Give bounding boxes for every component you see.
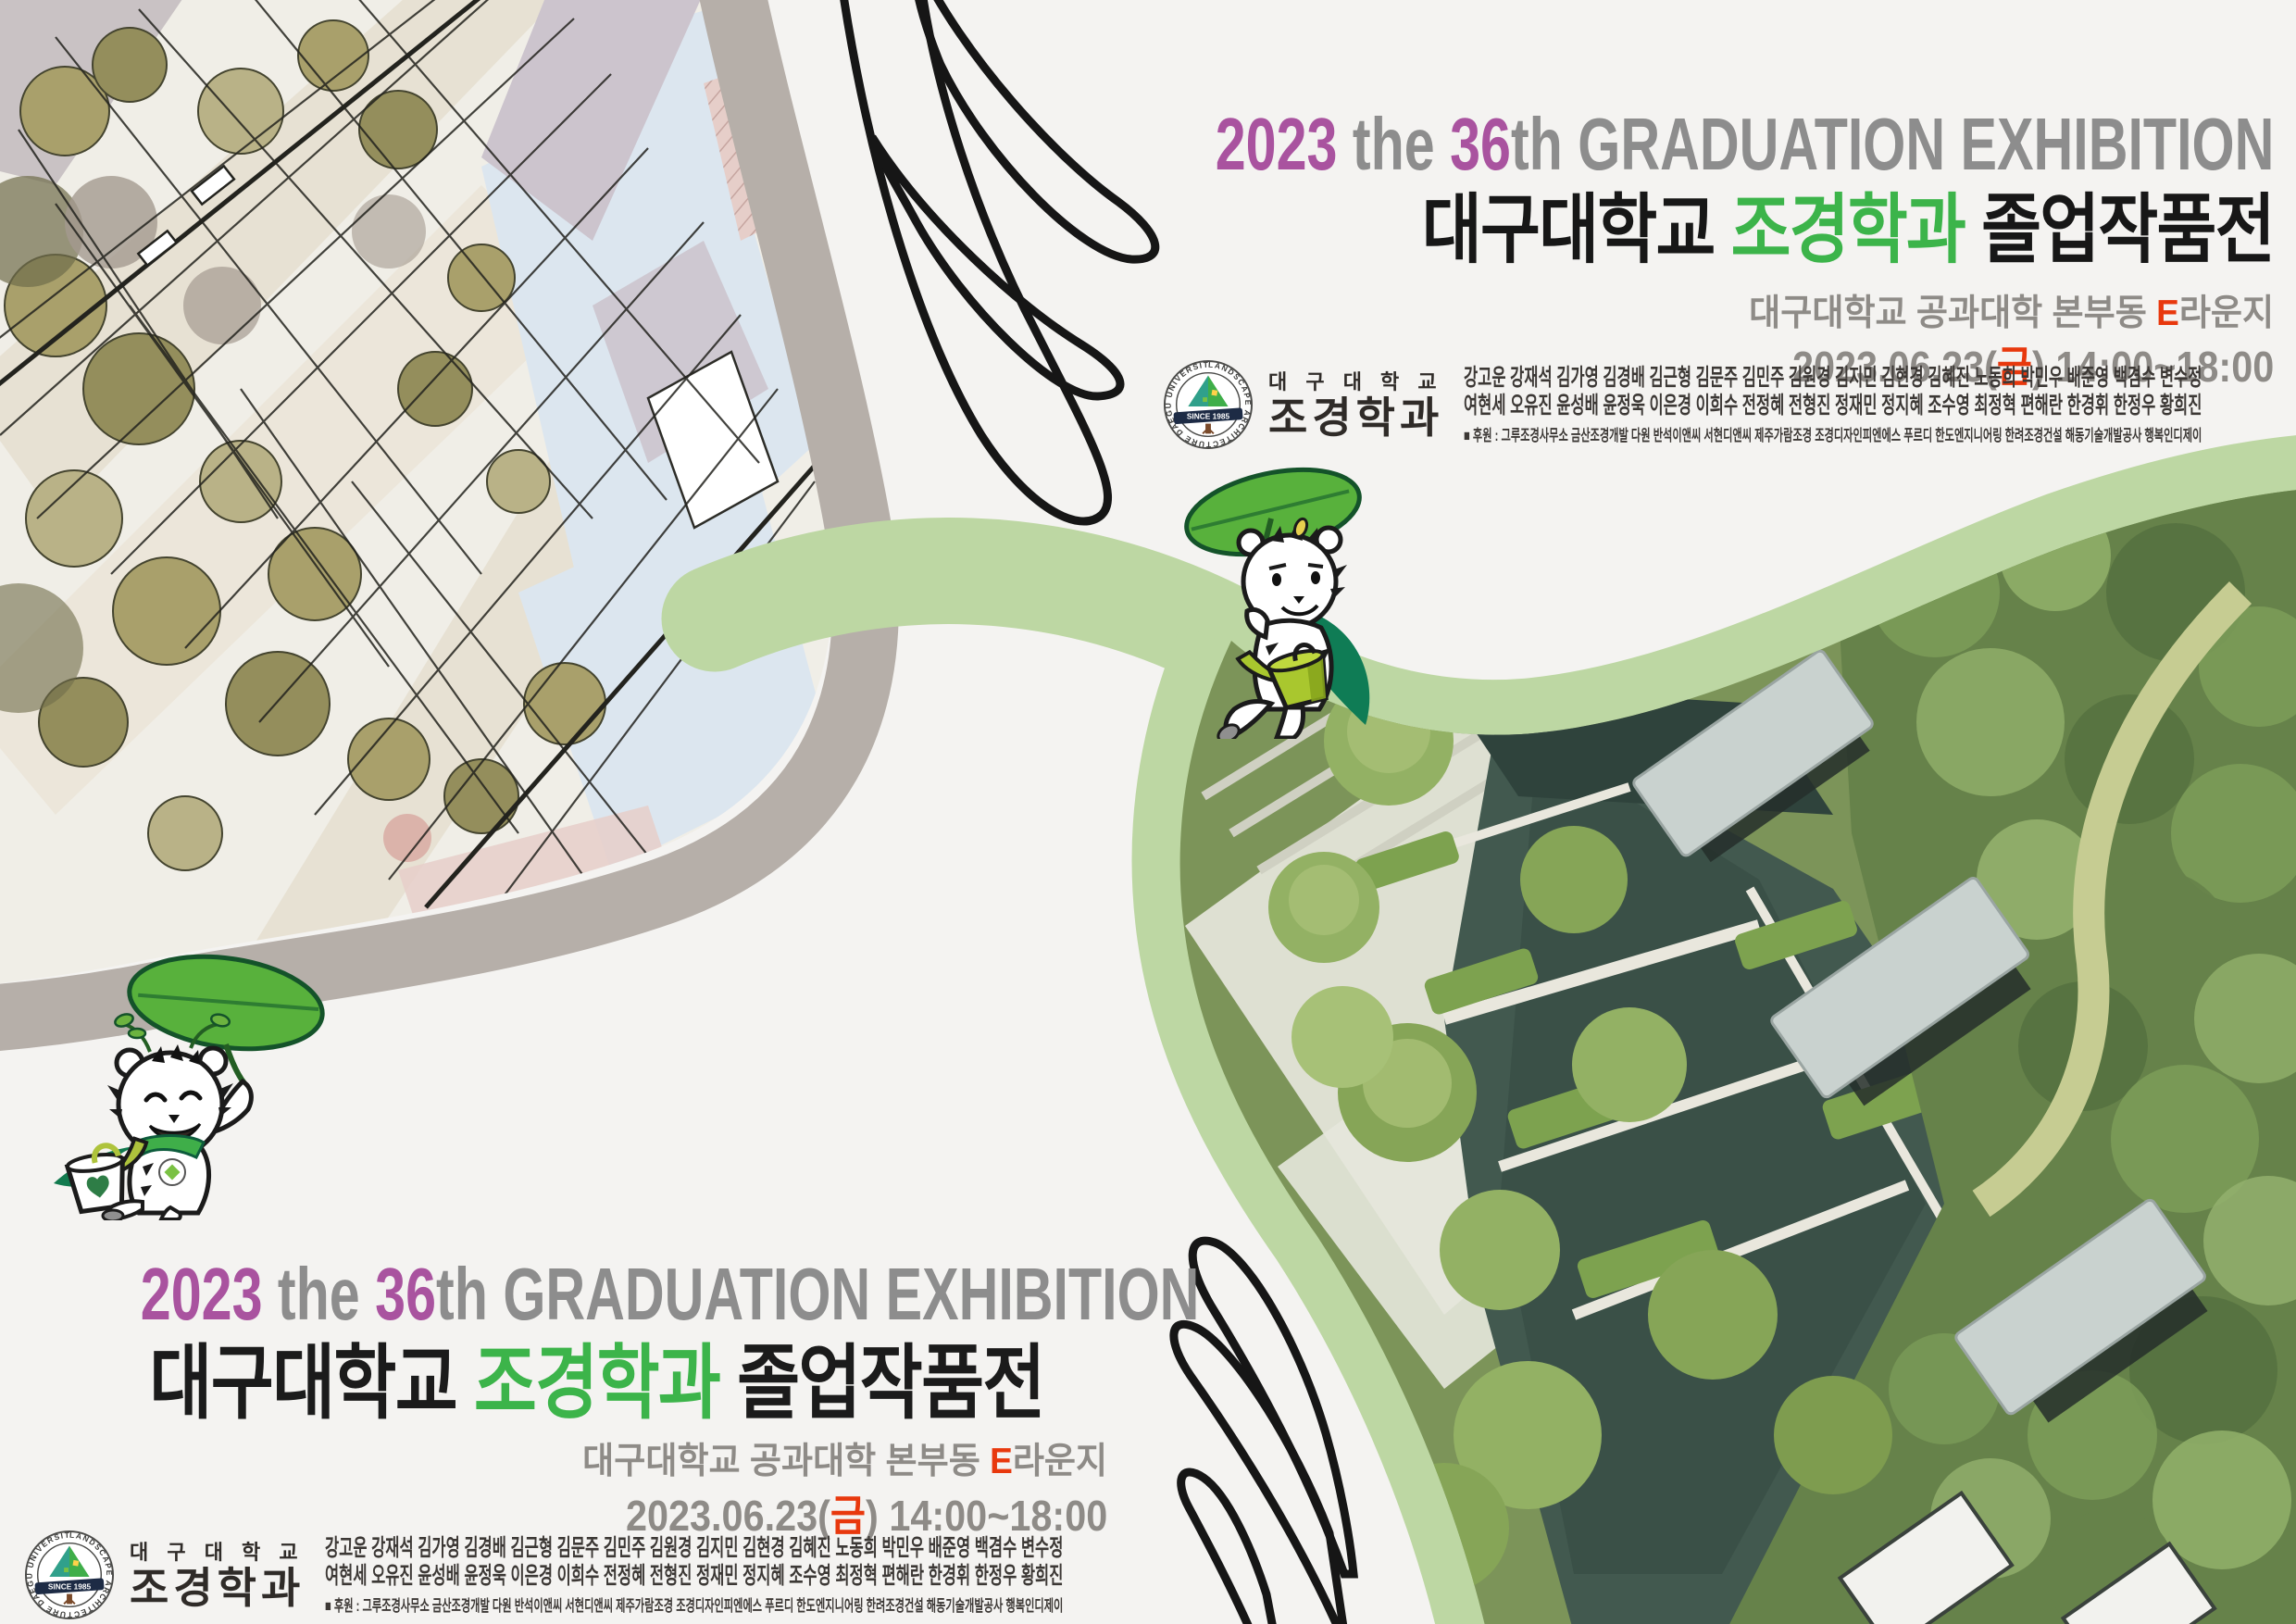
department-seal-logo: LANDSCAPE ARCHITECTURE DAEGU UNIVERSITY … — [24, 1530, 115, 1620]
logo-since-text: SINCE 1985 — [1187, 412, 1230, 421]
credits-bottom: LANDSCAPE ARCHITECTURE DAEGU UNIVERSITY … — [24, 1530, 1443, 1620]
university-name: 대 구 대 학 교 — [1268, 369, 1443, 395]
graduate-names-block: 강고운 강재석 김가영 김경배 김근형 김문주 김민주 김원경 김지민 김현경 … — [1464, 364, 2202, 445]
leaf-umbrella — [123, 952, 328, 1060]
names-row-2: 여현세 오유진 윤성배 윤정욱 이은경 이희수 전정혜 전형진 정재민 정지혜 … — [1464, 392, 2202, 419]
leaf-outlines-top — [839, 0, 1155, 521]
sponsors-row: ■ 후원 : 그루조경사무소 금산조경개발 다원 반석이앤씨 서현디앤씨 제주가… — [1464, 422, 2202, 445]
title-year: 2023 — [1215, 103, 1337, 185]
logo-since-text: SINCE 1985 — [48, 1582, 92, 1592]
department-name-block: 대 구 대 학 교 조경학과 — [130, 1540, 305, 1610]
department-name: 조경학과 — [1268, 395, 1443, 440]
department-seal-logo: LANDSCAPE ARCHITECTURE DAEGU UNIVERSITY … — [1163, 359, 1254, 450]
tiger-mascot-bottom — [31, 952, 328, 1220]
tiger-mascot-top — [1162, 461, 1393, 739]
names-row-1: 강고운 강재석 김가영 김경배 김근형 김문주 김민주 김원경 김지민 김현경 … — [1464, 364, 2202, 392]
exhibition-poster: 2023 the 36th GRADUATION EXHIBITION 대구대학… — [0, 0, 2296, 1624]
department-name-block: 대 구 대 학 교 조경학과 — [1268, 369, 1443, 440]
credits-top: LANDSCAPE ARCHITECTURE DAEGU UNIVERSITY … — [1163, 359, 2296, 450]
graduate-names-block: 강고운 강재석 김가영 김경배 김근형 김문주 김민주 김원경 김지민 김현경 … — [325, 1534, 1063, 1616]
